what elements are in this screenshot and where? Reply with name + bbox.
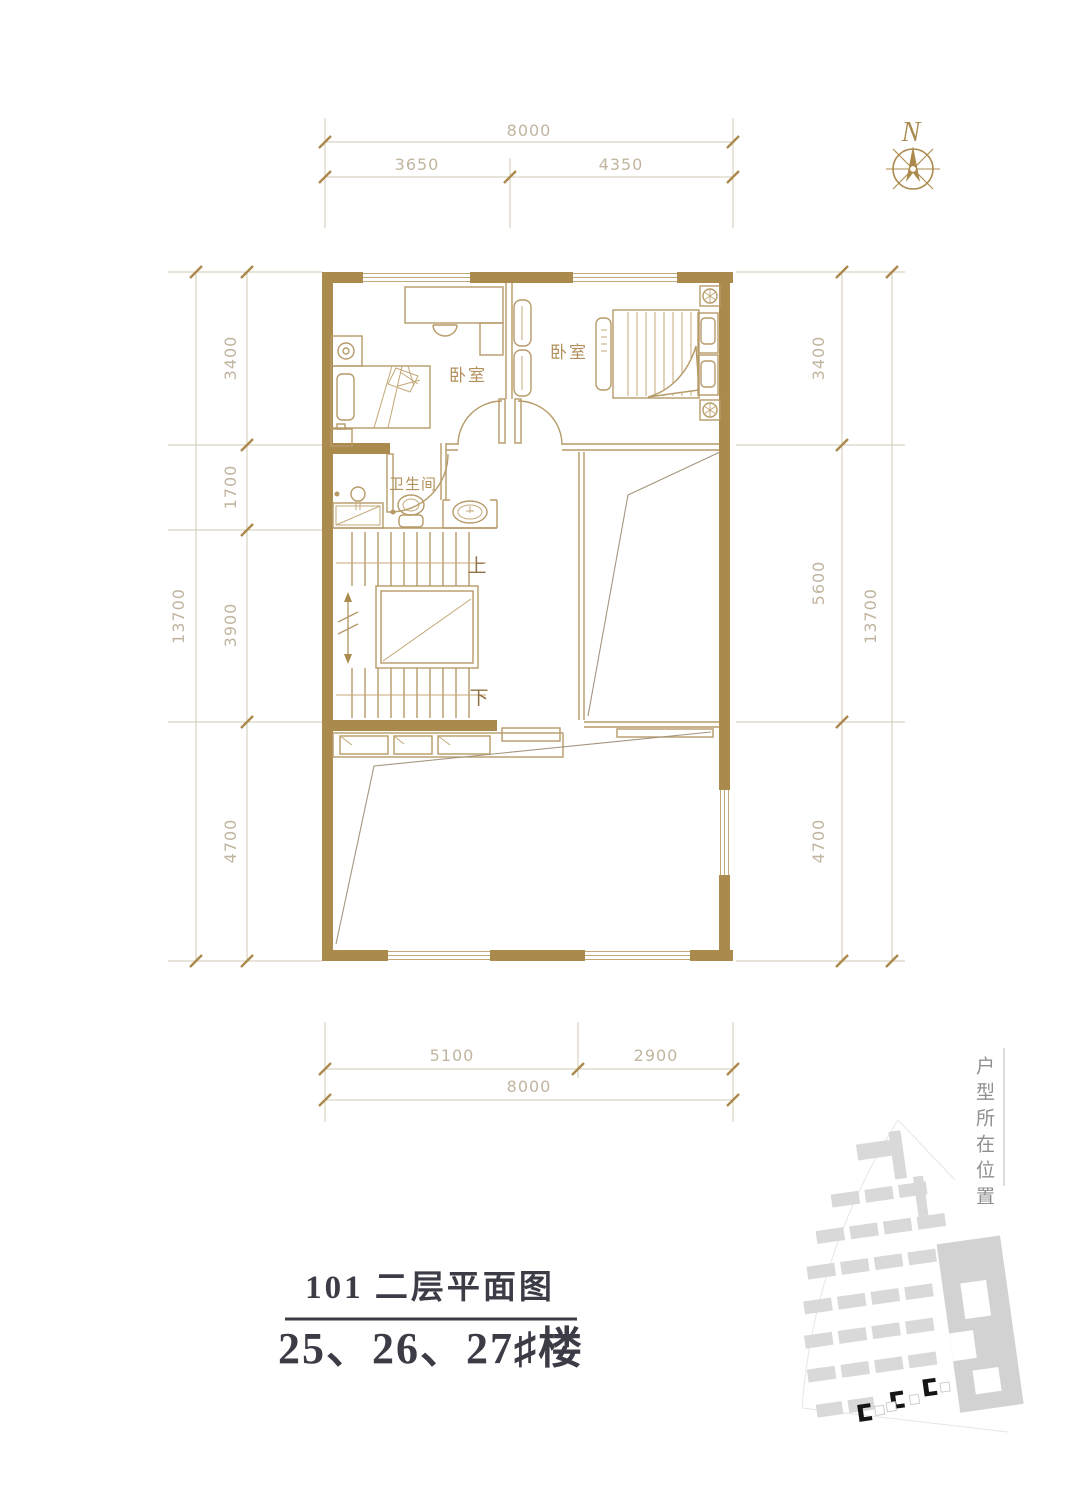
dimension-left: 13700 3400 1700 3900 4700 [168, 266, 322, 967]
toilet-tank [399, 515, 423, 527]
dimension-extension-lines [168, 272, 322, 961]
window-right [721, 790, 729, 875]
dim-top-seg2: 4350 [599, 155, 644, 174]
wall-bottom-right [690, 950, 733, 961]
stair-landing-diagonal [383, 599, 471, 661]
wall-right-upper [719, 272, 730, 790]
window-bottom-right [585, 952, 690, 960]
bathroom-fixtures [333, 487, 497, 528]
locator-caption: 户型所在位置 [970, 1056, 997, 1356]
bedroom-right-furniture [514, 286, 720, 420]
basin-counter [443, 500, 497, 528]
stairs: 上 下 [336, 532, 489, 718]
wall-hall-top [446, 444, 719, 450]
site-building [871, 1322, 901, 1339]
closet-unit [438, 736, 490, 754]
site-highlighted-building [857, 1403, 872, 1422]
void-diagonal-upper [588, 452, 720, 716]
pillow-icon [337, 374, 354, 420]
site-building [806, 1263, 836, 1280]
wall-top-middle [470, 272, 573, 283]
dim-right-seg2: 5600 [809, 561, 828, 606]
walls [322, 272, 733, 961]
window-top-right [573, 274, 677, 282]
bathroom-label: 卫生间 [389, 475, 437, 493]
door-swing-bedroom-left [458, 401, 502, 445]
site-building [908, 1352, 938, 1369]
lamp-icon [338, 343, 354, 359]
vanity-diagonal [336, 506, 380, 525]
nightstand-icon [331, 336, 362, 366]
stair-rails [336, 563, 486, 695]
site-building [849, 1222, 879, 1239]
wall-void-partition [579, 452, 584, 720]
site-building [803, 1298, 833, 1315]
site-building [883, 1218, 913, 1235]
desk-icon [405, 287, 503, 323]
shelf-icon [480, 323, 503, 355]
wall-bathroom-top [333, 443, 390, 454]
door-leaf-bedroom-right [515, 399, 521, 443]
mirror-lamp-icon [351, 487, 365, 501]
wall-stairs-bottom [333, 720, 497, 731]
closet-ticks [340, 736, 450, 745]
site-building [864, 1186, 894, 1203]
stair-treads-lower [352, 668, 469, 718]
dim-right-total: 13700 [861, 588, 880, 644]
void-markers [336, 452, 720, 944]
site-building [874, 1356, 904, 1373]
site-building [907, 1249, 937, 1266]
dim-top-seg1: 3650 [395, 155, 440, 174]
title-block: 101 二层平面图 25、26、27♯楼 [278, 1270, 584, 1373]
site-building [804, 1332, 834, 1349]
nightstand-detail [701, 318, 715, 344]
fixture-dot [391, 510, 396, 515]
floor-plan-page: 8000 3650 4350 13700 3400 1700 3900 4700… [0, 0, 1078, 1498]
dimension-lines [325, 142, 733, 177]
dim-left-seg3: 3900 [221, 603, 240, 648]
compass-north-icon: N [886, 117, 940, 189]
dimension-ticks [319, 136, 739, 183]
dim-top-total: 8000 [507, 121, 552, 140]
wall-bottom-middle [490, 950, 585, 961]
dim-right-seg3: 4700 [809, 819, 828, 864]
bed-flower-decor [388, 366, 420, 392]
closet-unit [340, 736, 388, 754]
site-small-box [940, 1382, 950, 1392]
wall-right-lower [719, 875, 730, 961]
window-top-left [363, 274, 470, 282]
washbasin-tap [466, 506, 474, 513]
site-building [840, 1258, 870, 1275]
closet-unit [394, 736, 432, 754]
dim-bottom-seg2: 2900 [634, 1046, 679, 1065]
site-building [807, 1366, 837, 1383]
toilet-icon [398, 495, 424, 515]
blanket-fold-lines [374, 366, 402, 428]
dim-left-seg1: 3400 [221, 336, 240, 381]
lamp-center [343, 348, 349, 354]
site-building [874, 1253, 904, 1270]
nightstand-detail [701, 361, 715, 387]
site-building [837, 1293, 867, 1310]
fixture-dot [335, 492, 340, 497]
bedroom-left-label: 卧室 [449, 366, 487, 386]
closet-row [333, 733, 563, 757]
compass-hub [910, 166, 917, 173]
dim-bottom-total: 8000 [507, 1077, 552, 1096]
stairs-up-label: 上 [467, 555, 486, 577]
wall-bedroom-partition [506, 283, 512, 399]
site-building [871, 1288, 901, 1305]
site-building [840, 1361, 870, 1378]
stair-treads-upper [352, 532, 469, 586]
site-small-box [875, 1405, 885, 1415]
wall-bottom-left [322, 950, 388, 961]
site-small-box [909, 1394, 919, 1404]
site-building [905, 1318, 935, 1335]
site-building-notch [973, 1367, 1002, 1394]
dimension-extension-lines [325, 1022, 733, 1122]
door-leaf-bedroom-left [499, 399, 505, 443]
headboard-detail [601, 330, 607, 351]
dim-left-seg4: 4700 [221, 819, 240, 864]
bedroom-right-label: 卧室 [550, 343, 588, 363]
wall-void-bottom [584, 722, 719, 727]
chair-icon [433, 325, 457, 336]
site-building [831, 1191, 861, 1208]
dim-bottom-seg1: 5100 [430, 1046, 475, 1065]
door-swing-bedroom-right [518, 401, 562, 445]
site-highlighted-building [922, 1378, 937, 1397]
stairs-down-label: 下 [469, 687, 488, 709]
dimension-right: 3400 5600 4700 13700 [736, 266, 905, 967]
site-small-box [886, 1402, 896, 1412]
ceiling-lamp-icon [700, 286, 720, 306]
dim-left-total: 13700 [169, 588, 188, 644]
floor-plan-drawing: 8000 3650 4350 13700 3400 1700 3900 4700… [0, 0, 1078, 1498]
site-building [816, 1227, 846, 1244]
building-numbers: 25、26、27♯楼 [278, 1324, 584, 1373]
stair-arrow-down [344, 654, 352, 664]
void-diagonal-lower [336, 732, 711, 944]
ceiling-lamp-icon [700, 400, 720, 420]
compass-north-label: N [901, 117, 922, 148]
site-building [816, 1401, 844, 1417]
stair-arrow-up [344, 592, 352, 602]
site-building [838, 1327, 868, 1344]
site-building [904, 1283, 934, 1300]
dimension-top: 8000 3650 4350 [319, 118, 739, 228]
dim-left-seg2: 1700 [221, 465, 240, 510]
window-bottom-left [388, 952, 490, 960]
site-building [913, 1176, 928, 1217]
site-building [856, 1140, 892, 1161]
dimension-bottom: 5100 2900 8000 [319, 1022, 739, 1122]
headboard-icon [596, 318, 611, 390]
plan-title: 101 二层平面图 [305, 1270, 555, 1306]
dim-right-seg1: 3400 [809, 336, 828, 381]
cabinet-corridor [502, 728, 560, 741]
